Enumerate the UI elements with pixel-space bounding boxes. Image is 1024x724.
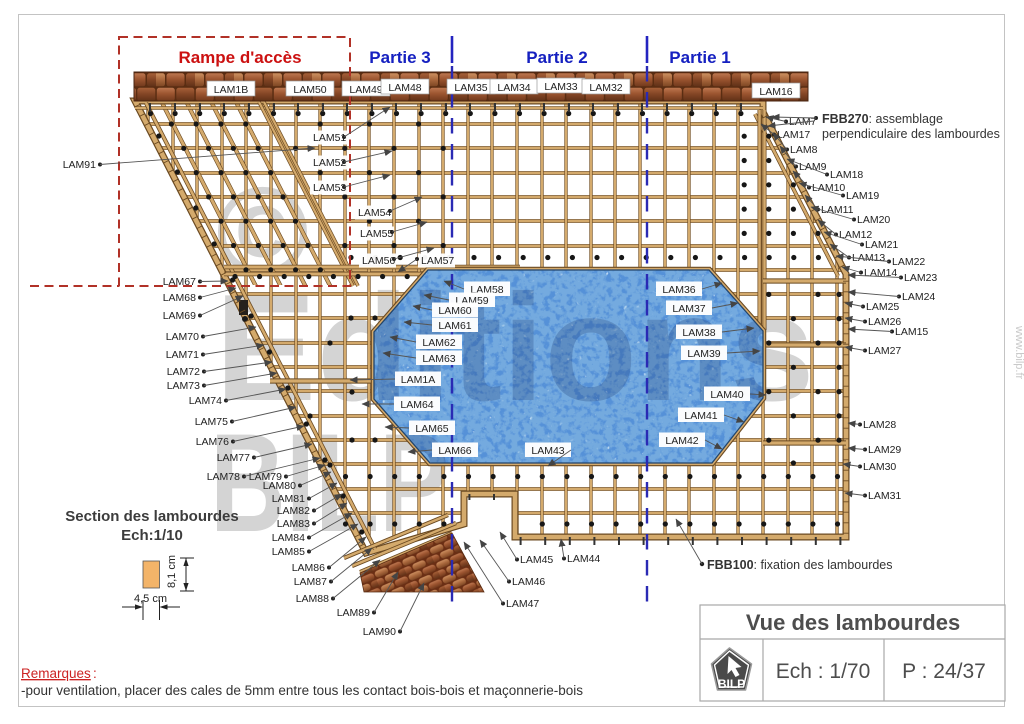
svg-text:LAM52: LAM52 <box>313 157 346 169</box>
svg-text:LAM39: LAM39 <box>687 348 720 360</box>
svg-text:LAM82: LAM82 <box>277 505 310 517</box>
svg-text:LAM61: LAM61 <box>438 320 471 332</box>
svg-text:Ech:1/10: Ech:1/10 <box>121 527 183 544</box>
svg-text:LAM25: LAM25 <box>866 301 899 313</box>
svg-text:LAM57: LAM57 <box>421 255 454 267</box>
svg-text:LAM28: LAM28 <box>863 419 896 431</box>
svg-text:LAM85: LAM85 <box>272 546 305 558</box>
svg-text:LAM47: LAM47 <box>506 598 539 610</box>
svg-text:8,1 cm: 8,1 cm <box>166 555 178 588</box>
svg-text:LAM86: LAM86 <box>292 562 325 574</box>
svg-text:LAM19: LAM19 <box>846 190 879 202</box>
svg-text:LAM30: LAM30 <box>863 461 896 473</box>
svg-text:Rampe d'accès: Rampe d'accès <box>178 48 301 67</box>
svg-text:LAM35: LAM35 <box>454 82 487 94</box>
svg-text:LAM23: LAM23 <box>904 272 937 284</box>
svg-text:Partie 3: Partie 3 <box>369 48 430 67</box>
svg-text:LAM89: LAM89 <box>337 607 370 619</box>
svg-text:LAM56: LAM56 <box>362 255 395 267</box>
svg-text:LAM91: LAM91 <box>63 159 96 171</box>
svg-text:LAM72: LAM72 <box>167 366 200 378</box>
svg-text:LAM54: LAM54 <box>358 207 391 219</box>
svg-text:LAM55: LAM55 <box>360 228 393 240</box>
svg-text:Partie 1: Partie 1 <box>669 48 730 67</box>
svg-text:LAM1B: LAM1B <box>214 84 248 96</box>
svg-text:LAM29: LAM29 <box>868 444 901 456</box>
svg-text:LAM53: LAM53 <box>313 182 346 194</box>
svg-text:LAM77: LAM77 <box>217 452 250 464</box>
svg-text:LAM73: LAM73 <box>167 380 200 392</box>
svg-text:LAM1A: LAM1A <box>401 374 435 386</box>
svg-text:LAM44: LAM44 <box>567 553 600 565</box>
svg-text:LAM50: LAM50 <box>293 84 326 96</box>
svg-text:LAM63: LAM63 <box>422 353 455 365</box>
svg-text:LAM24: LAM24 <box>902 291 935 303</box>
svg-text:LAM38: LAM38 <box>682 327 715 339</box>
svg-text:LAM41: LAM41 <box>684 410 717 422</box>
svg-text:LAM76: LAM76 <box>196 436 229 448</box>
svg-text:LAM37: LAM37 <box>672 303 705 315</box>
svg-text:LAM17: LAM17 <box>777 129 810 141</box>
svg-text::: : <box>93 666 97 681</box>
svg-text:LAM74: LAM74 <box>189 395 222 407</box>
svg-text:4,5 cm: 4,5 cm <box>134 593 167 605</box>
svg-text:LAM43: LAM43 <box>531 445 564 457</box>
svg-text:LAM16: LAM16 <box>759 86 792 98</box>
svg-text:LAM90: LAM90 <box>363 626 396 638</box>
svg-text:LAM64: LAM64 <box>400 399 433 411</box>
svg-text:LAM80: LAM80 <box>263 480 296 492</box>
svg-text:LAM32: LAM32 <box>589 82 622 94</box>
svg-text:LAM88: LAM88 <box>296 593 329 605</box>
svg-text:LAM9: LAM9 <box>799 161 827 173</box>
svg-text:LAM51: LAM51 <box>313 132 346 144</box>
svg-text:LAM70: LAM70 <box>166 331 199 343</box>
svg-text:LAM68: LAM68 <box>163 292 196 304</box>
svg-text:www.bilp.fr: www.bilp.fr <box>1013 325 1024 380</box>
svg-text:LAM60: LAM60 <box>438 305 471 317</box>
svg-text:FBB100: fixation des lambourde: FBB100: fixation des lambourdes <box>707 558 893 572</box>
svg-text:LAM78: LAM78 <box>207 471 240 483</box>
svg-text:LAM42: LAM42 <box>665 435 698 447</box>
svg-text:LAM34: LAM34 <box>497 82 530 94</box>
svg-text:LAM33: LAM33 <box>544 81 577 93</box>
svg-text:LAM45: LAM45 <box>520 554 553 566</box>
svg-text:LAM69: LAM69 <box>163 310 196 322</box>
svg-text:LAM75: LAM75 <box>195 416 228 428</box>
svg-text:Partie 2: Partie 2 <box>526 48 587 67</box>
svg-text:Ech : 1/70: Ech : 1/70 <box>776 660 871 683</box>
svg-text:LAM21: LAM21 <box>865 239 898 251</box>
svg-text:LAM48: LAM48 <box>388 82 421 94</box>
svg-text:Remarques: Remarques <box>21 666 91 681</box>
svg-text:LAM81: LAM81 <box>272 493 305 505</box>
svg-text:BILP: BILP <box>718 677 745 691</box>
svg-text:LAM31: LAM31 <box>868 490 901 502</box>
svg-text:LAM18: LAM18 <box>830 169 863 181</box>
svg-text:P : 24/37: P : 24/37 <box>902 660 986 683</box>
svg-text:LAM62: LAM62 <box>422 337 455 349</box>
svg-text:LAM71: LAM71 <box>166 349 199 361</box>
svg-text:perpendiculaire des lambourdes: perpendiculaire des lambourdes <box>822 127 1000 141</box>
svg-text:LAM15: LAM15 <box>895 326 928 338</box>
svg-text:LAM65: LAM65 <box>415 423 448 435</box>
svg-text:LAM66: LAM66 <box>438 445 471 457</box>
svg-text:LAM46: LAM46 <box>512 576 545 588</box>
svg-text:LAM49: LAM49 <box>349 84 382 96</box>
svg-text:LAM20: LAM20 <box>857 214 890 226</box>
svg-text:LAM87: LAM87 <box>294 576 327 588</box>
svg-text:-pour ventilation, placer des: -pour ventilation, placer des cales de 5… <box>21 683 583 698</box>
svg-text:LAM36: LAM36 <box>662 284 695 296</box>
svg-text:LAM83: LAM83 <box>277 518 310 530</box>
svg-text:Vue des lambourdes: Vue des lambourdes <box>746 610 960 635</box>
svg-text:LAM84: LAM84 <box>272 532 305 544</box>
svg-text:LAM8: LAM8 <box>790 144 818 156</box>
svg-text:LAM40: LAM40 <box>710 389 743 401</box>
svg-text:LAM67: LAM67 <box>163 276 196 288</box>
svg-text:LAM27: LAM27 <box>868 345 901 357</box>
svg-text:FBB270: assemblage: FBB270: assemblage <box>822 112 943 126</box>
svg-text:Section des lambourdes: Section des lambourdes <box>65 508 238 525</box>
